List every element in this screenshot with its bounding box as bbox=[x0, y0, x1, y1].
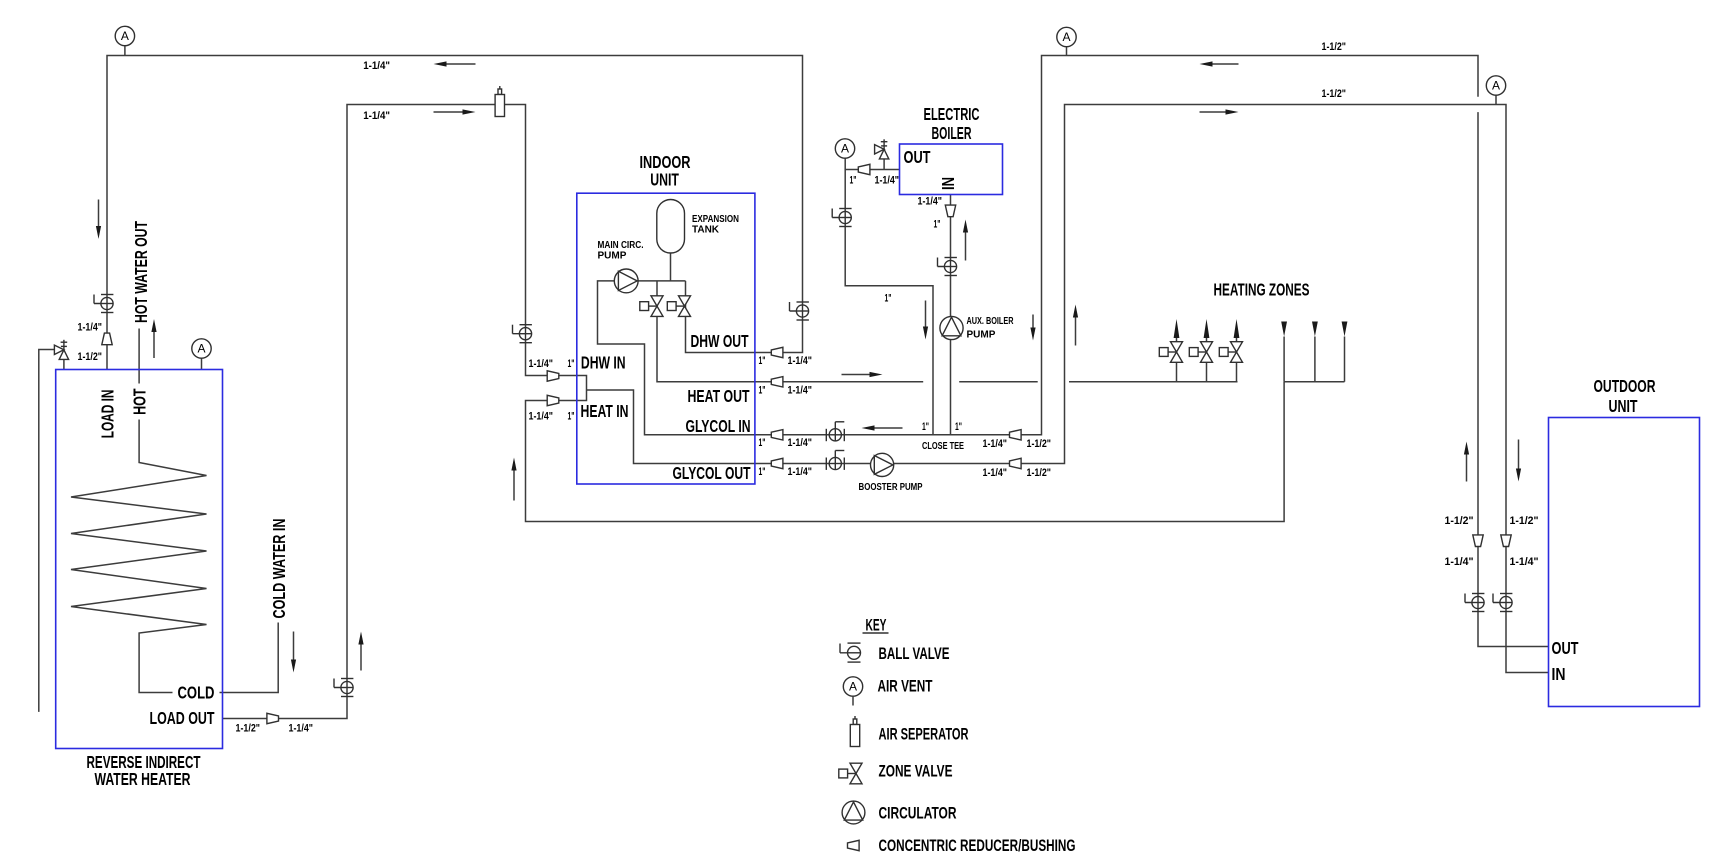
svg-text:1": 1" bbox=[885, 293, 892, 305]
svg-text:UNIT: UNIT bbox=[1609, 396, 1638, 416]
svg-text:HOT WATER OUT: HOT WATER OUT bbox=[131, 221, 151, 323]
svg-text:1": 1" bbox=[759, 437, 766, 449]
svg-text:1-1/4": 1-1/4" bbox=[788, 385, 813, 397]
svg-text:AIR VENT: AIR VENT bbox=[878, 678, 933, 696]
svg-text:1": 1" bbox=[922, 421, 929, 433]
svg-text:1-1/4": 1-1/4" bbox=[918, 196, 943, 208]
svg-text:DHW OUT: DHW OUT bbox=[691, 331, 749, 351]
svg-text:1-1/4": 1-1/4" bbox=[983, 467, 1008, 479]
svg-text:1-1/4": 1-1/4" bbox=[363, 60, 390, 72]
svg-text:1-1/2": 1-1/2" bbox=[1027, 467, 1052, 479]
svg-text:TANK: TANK bbox=[692, 225, 720, 236]
svg-text:EXPANSION: EXPANSION bbox=[692, 214, 739, 225]
svg-text:WATER HEATER: WATER HEATER bbox=[95, 769, 191, 789]
svg-text:IN: IN bbox=[938, 177, 958, 190]
svg-text:BALL VALVE: BALL VALVE bbox=[879, 645, 950, 663]
svg-text:CLOSE TEE: CLOSE TEE bbox=[922, 441, 964, 452]
svg-text:1": 1" bbox=[934, 219, 941, 231]
svg-text:1-1/4": 1-1/4" bbox=[78, 322, 103, 334]
svg-text:COLD WATER IN: COLD WATER IN bbox=[269, 519, 289, 619]
svg-text:1-1/4": 1-1/4" bbox=[788, 355, 813, 367]
svg-text:1-1/2": 1-1/2" bbox=[1322, 88, 1347, 100]
svg-text:1": 1" bbox=[568, 411, 575, 423]
svg-text:1-1/2": 1-1/2" bbox=[1445, 515, 1474, 527]
svg-text:HEAT IN: HEAT IN bbox=[581, 401, 629, 421]
svg-text:1-1/2": 1-1/2" bbox=[1027, 438, 1052, 450]
svg-text:1": 1" bbox=[759, 385, 766, 397]
svg-text:LOAD OUT: LOAD OUT bbox=[150, 708, 215, 728]
svg-text:1-1/4": 1-1/4" bbox=[788, 466, 813, 478]
svg-text:PUMP: PUMP bbox=[967, 330, 996, 341]
svg-text:PUMP: PUMP bbox=[598, 251, 627, 262]
svg-text:IN: IN bbox=[1552, 664, 1566, 684]
svg-text:1-1/4": 1-1/4" bbox=[788, 437, 813, 449]
svg-text:ZONE VALVE: ZONE VALVE bbox=[879, 763, 953, 781]
svg-text:UNIT: UNIT bbox=[650, 169, 679, 189]
svg-text:1-1/4": 1-1/4" bbox=[363, 110, 390, 122]
svg-text:1-1/4": 1-1/4" bbox=[529, 411, 554, 423]
svg-text:GLYCOL IN: GLYCOL IN bbox=[686, 416, 751, 436]
svg-text:CIRCULATOR: CIRCULATOR bbox=[879, 805, 957, 823]
svg-text:KEY: KEY bbox=[866, 617, 887, 635]
svg-text:LOAD IN: LOAD IN bbox=[97, 390, 117, 439]
svg-text:OUT: OUT bbox=[1552, 638, 1579, 658]
svg-text:1-1/4": 1-1/4" bbox=[983, 438, 1008, 450]
svg-text:CONCENTRIC REDUCER/BUSHING: CONCENTRIC REDUCER/BUSHING bbox=[879, 837, 1076, 855]
svg-text:BOILER: BOILER bbox=[932, 123, 972, 143]
svg-text:OUTDOOR: OUTDOOR bbox=[1594, 376, 1656, 396]
svg-text:1": 1" bbox=[955, 421, 962, 433]
svg-text:1-1/4": 1-1/4" bbox=[875, 175, 900, 187]
svg-text:BOOSTER PUMP: BOOSTER PUMP bbox=[859, 482, 923, 493]
svg-text:DHW IN: DHW IN bbox=[581, 353, 626, 373]
svg-text:1": 1" bbox=[759, 466, 766, 478]
svg-text:ELECTRIC: ELECTRIC bbox=[924, 104, 980, 124]
svg-text:MAIN CIRC.: MAIN CIRC. bbox=[598, 240, 644, 251]
svg-text:1-1/4": 1-1/4" bbox=[529, 358, 554, 370]
svg-text:1-1/2": 1-1/2" bbox=[1510, 515, 1539, 527]
svg-text:1": 1" bbox=[759, 355, 766, 367]
svg-text:HOT: HOT bbox=[130, 388, 150, 415]
svg-text:1-1/4": 1-1/4" bbox=[289, 723, 314, 735]
svg-text:1-1/2": 1-1/2" bbox=[78, 351, 103, 363]
svg-text:HEAT OUT: HEAT OUT bbox=[688, 386, 750, 406]
svg-text:1-1/2": 1-1/2" bbox=[236, 723, 261, 735]
svg-text:1-1/4": 1-1/4" bbox=[1510, 556, 1539, 568]
svg-text:1-1/2": 1-1/2" bbox=[1322, 41, 1347, 53]
svg-text:1-1/4": 1-1/4" bbox=[1445, 556, 1474, 568]
svg-text:1": 1" bbox=[568, 358, 575, 370]
svg-text:HEATING ZONES: HEATING ZONES bbox=[1214, 280, 1310, 300]
svg-text:COLD: COLD bbox=[178, 683, 215, 703]
svg-text:AUX. BOILER: AUX. BOILER bbox=[967, 316, 1015, 327]
svg-text:OUT: OUT bbox=[904, 147, 931, 167]
svg-text:1": 1" bbox=[850, 175, 857, 187]
svg-text:AIR SEPERATOR: AIR SEPERATOR bbox=[879, 726, 969, 744]
svg-text:GLYCOL OUT: GLYCOL OUT bbox=[673, 463, 751, 483]
